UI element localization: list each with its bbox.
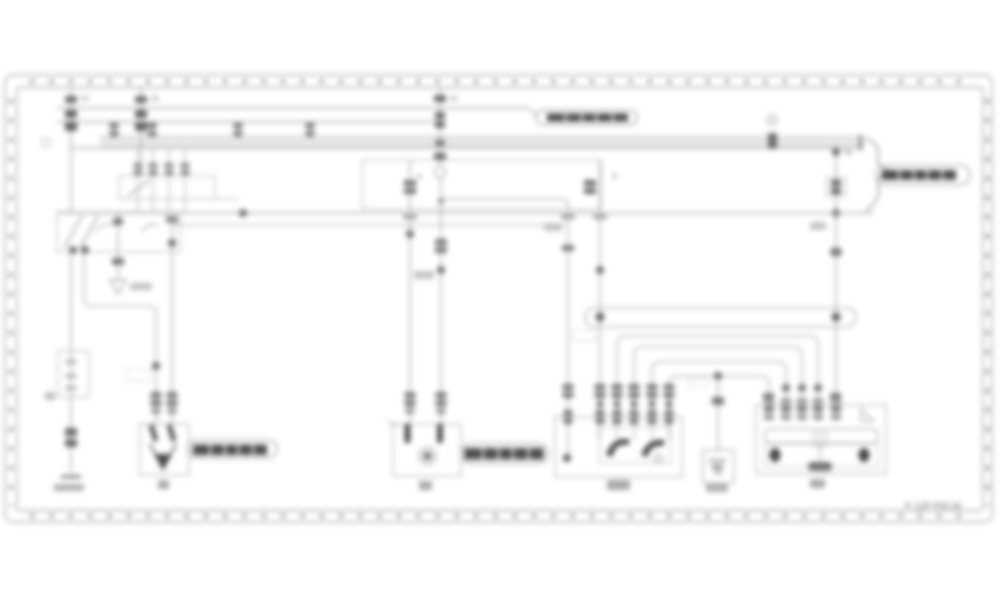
svg-text:P 12P-PM.06: P 12P-PM.06 [905, 501, 961, 512]
